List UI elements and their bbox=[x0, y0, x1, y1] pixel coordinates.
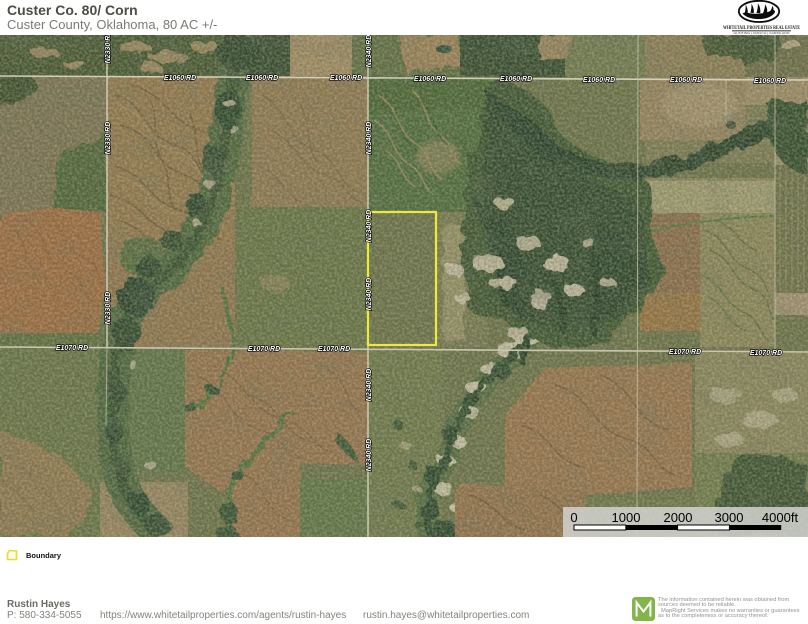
svg-text:E1070 RD: E1070 RD bbox=[750, 350, 782, 357]
svg-text:4000ft: 4000ft bbox=[762, 510, 799, 525]
svg-text:N2330 RD: N2330 RD bbox=[105, 122, 112, 155]
svg-text:N2330 RD: N2330 RD bbox=[105, 292, 112, 325]
svg-text:E1060 RD: E1060 RD bbox=[330, 75, 362, 82]
svg-text:N2340 RD: N2340 RD bbox=[366, 35, 373, 67]
svg-text:E1070 RD: E1070 RD bbox=[318, 346, 350, 353]
svg-text:1000: 1000 bbox=[612, 510, 641, 525]
svg-text:N2340 RD: N2340 RD bbox=[366, 369, 373, 402]
svg-text:WHITETAIL PROPERTIES REAL ESTA: WHITETAIL PROPERTIES REAL ESTATE bbox=[723, 25, 800, 31]
svg-text:N2340 RD: N2340 RD bbox=[366, 122, 373, 155]
svg-text:E1070 RD: E1070 RD bbox=[56, 345, 88, 352]
svg-text:N2330 RD: N2330 RD bbox=[105, 35, 112, 63]
svg-text:E1070 RD: E1070 RD bbox=[248, 346, 280, 353]
svg-text:E1060 RD: E1060 RD bbox=[500, 76, 532, 83]
svg-text:E1060 RD: E1060 RD bbox=[754, 78, 786, 85]
svg-text:E1060 RD: E1060 RD bbox=[246, 75, 278, 82]
svg-text:E1060 RD: E1060 RD bbox=[583, 77, 615, 84]
svg-text:E1060 RD: E1060 RD bbox=[670, 77, 702, 84]
svg-text:E1060 RD: E1060 RD bbox=[414, 76, 446, 83]
svg-text:E1070 RD: E1070 RD bbox=[669, 349, 701, 356]
svg-text:N2340 RD: N2340 RD bbox=[366, 439, 373, 472]
svg-text:3000: 3000 bbox=[715, 510, 744, 525]
svg-text:N2340 RD: N2340 RD bbox=[366, 210, 373, 243]
svg-text:0: 0 bbox=[570, 510, 577, 525]
svg-text:N2340 RD: N2340 RD bbox=[366, 278, 373, 311]
svg-text:2000: 2000 bbox=[664, 510, 693, 525]
svg-text:E1060 RD: E1060 RD bbox=[164, 75, 196, 82]
